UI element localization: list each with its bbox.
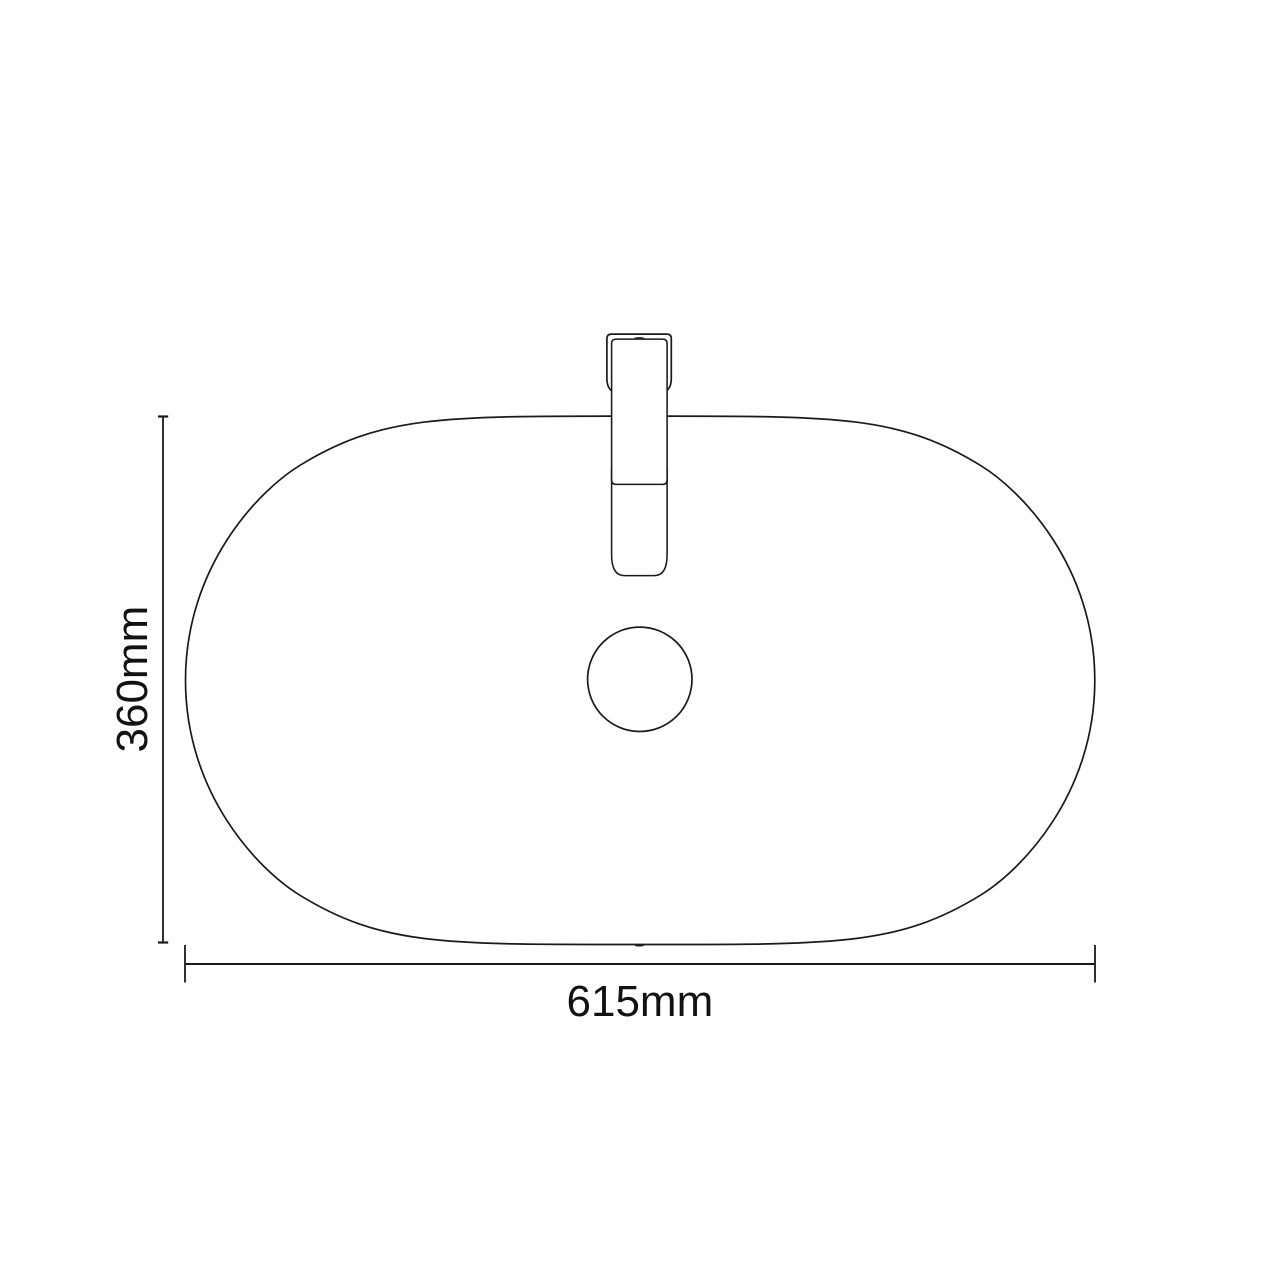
svg-text:360mm: 360mm [108,606,157,753]
svg-text:615mm: 615mm [567,977,714,1026]
